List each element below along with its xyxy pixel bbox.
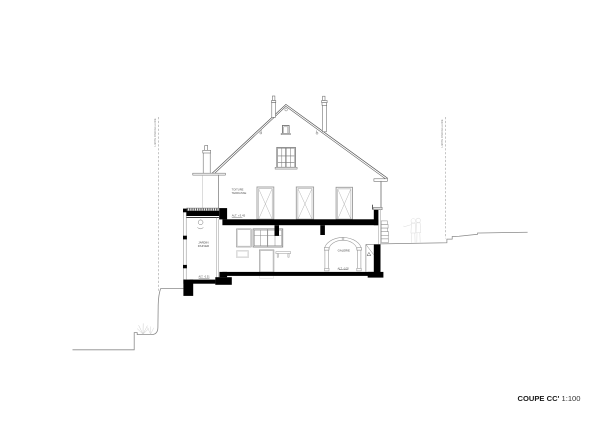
- svg-text:GALERIE: GALERIE: [338, 248, 350, 252]
- svg-text:COUPE CC' 1:100: COUPE CC' 1:100: [517, 394, 580, 403]
- svg-text:ALT. +3.45: ALT. +3.45: [232, 214, 246, 218]
- svg-text:D'HIVER: D'HIVER: [198, 244, 209, 248]
- svg-text:ALT. -0.51: ALT. -0.51: [198, 276, 210, 279]
